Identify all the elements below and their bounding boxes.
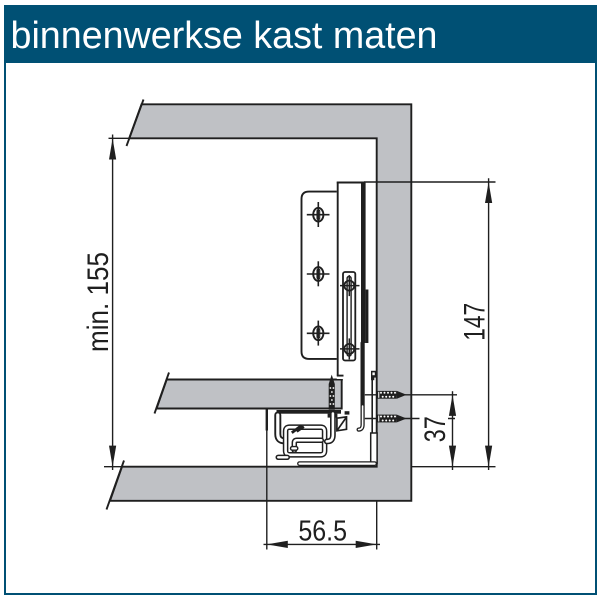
svg-text:37: 37 <box>419 416 452 442</box>
svg-text:147: 147 <box>459 303 492 341</box>
svg-text:binnenwerkse kast maten: binnenwerkse kast maten <box>11 15 438 57</box>
svg-text:56.5: 56.5 <box>298 515 347 547</box>
svg-text:min. 155: min. 155 <box>82 252 115 352</box>
